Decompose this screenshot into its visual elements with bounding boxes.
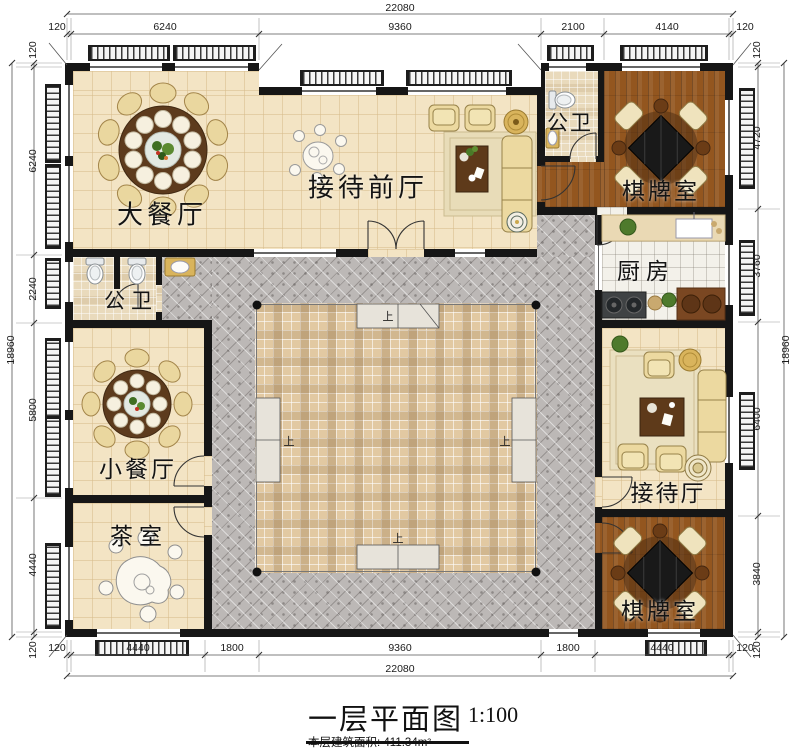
dim-bottom-total: 22080 — [385, 663, 414, 675]
floor-corridor-east — [537, 215, 595, 257]
window — [725, 397, 733, 463]
room-label-reception-hall: 接待厅 — [631, 474, 706, 508]
window — [65, 547, 73, 620]
window — [90, 63, 162, 71]
dim-right-5: 120 — [751, 641, 763, 659]
dim-bottom-1: 4440 — [126, 642, 149, 654]
window — [549, 629, 578, 637]
dim-bottom-3: 9360 — [388, 642, 411, 654]
dim-top-5: 120 — [736, 21, 754, 33]
room-label-grand-dining: 大餐厅 — [117, 195, 207, 232]
railing-icon — [45, 84, 61, 163]
railing-icon — [45, 164, 61, 249]
door-gap-main-entrance — [368, 249, 424, 257]
stair-up-label: 上 — [500, 433, 511, 449]
room-label-tea-room: 茶室 — [110, 517, 168, 551]
dim-left-0: 120 — [27, 41, 39, 59]
window — [622, 63, 700, 71]
door-gap-wc-top — [570, 156, 596, 162]
door-gap-kitchen — [597, 207, 627, 215]
railing-icon — [45, 338, 61, 419]
window — [725, 245, 733, 305]
dim-top-4: 4140 — [655, 21, 678, 33]
door-gap-tea-room — [204, 507, 212, 535]
dim-bottom-0: 120 — [48, 642, 66, 654]
plan-scale: 1:100 — [468, 702, 518, 728]
window — [65, 342, 73, 410]
dim-left-5: 120 — [27, 641, 39, 659]
dim-top-1: 6240 — [153, 21, 176, 33]
railing-icon — [620, 45, 708, 61]
railing-icon — [547, 45, 594, 61]
stair-up-label: 上 — [284, 433, 295, 449]
floor-corridor-alcove — [162, 257, 212, 320]
window — [455, 249, 485, 257]
dim-right-total: 18960 — [780, 335, 792, 364]
dim-bottom-2: 1800 — [220, 642, 243, 654]
window — [65, 85, 73, 156]
dim-right-3: 6400 — [751, 407, 763, 430]
dim-bottom-4: 1800 — [556, 642, 579, 654]
stair-up-label: 上 — [393, 530, 404, 546]
window — [595, 245, 602, 290]
room-label-chess-top: 棋牌室 — [622, 172, 700, 206]
window — [725, 100, 733, 175]
window — [65, 262, 73, 302]
dim-left-4: 4440 — [27, 553, 39, 576]
dim-left-total: 18960 — [5, 335, 17, 364]
railing-icon — [88, 45, 170, 61]
dim-top-2: 9360 — [388, 21, 411, 33]
window — [97, 629, 180, 637]
room-label-kitchen: 厨房 — [617, 252, 675, 286]
dim-top-3: 2100 — [561, 21, 584, 33]
room-label-wc-top: 公卫 — [547, 107, 593, 137]
railing-icon — [45, 258, 61, 309]
stair-up-label: 上 — [383, 308, 394, 324]
railing-icon — [739, 240, 755, 316]
dim-bottom-5: 4440 — [650, 642, 673, 654]
window — [408, 87, 506, 95]
dim-top-0: 120 — [48, 21, 66, 33]
dim-right-1: 4720 — [751, 126, 763, 149]
room-label-small-dining: 小餐厅 — [99, 450, 177, 484]
railing-icon — [173, 45, 256, 61]
dim-left-1: 6240 — [27, 149, 39, 172]
plan-area-note: 本层建筑面积: 411.34m² — [308, 734, 431, 750]
railing-icon — [739, 392, 755, 470]
room-label-front-reception: 接待前厅 — [308, 168, 428, 205]
door-gap-small-dining — [204, 456, 212, 486]
window — [549, 63, 586, 71]
floor-chess-top-entry — [545, 162, 604, 207]
dim-left-3: 5800 — [27, 398, 39, 421]
door-gap-chess-bottom — [595, 523, 602, 553]
door-gap-chess-top — [537, 166, 545, 202]
floor-plan: 大餐厅 接待前厅 公卫 棋牌室 厨房 公卫 小餐厅 茶室 接待厅 棋牌室 上 上… — [0, 0, 800, 750]
window — [302, 87, 376, 95]
window — [65, 166, 73, 242]
window — [648, 629, 700, 637]
floor-grand-dining — [73, 71, 259, 95]
door-gap-reception-hall — [595, 477, 602, 507]
dim-right-4: 3840 — [751, 562, 763, 585]
dim-top-total: 22080 — [385, 2, 414, 14]
dim-right-0: 120 — [751, 41, 763, 59]
window — [175, 63, 248, 71]
railing-icon — [406, 70, 512, 86]
dim-left-2: 2240 — [27, 277, 39, 300]
dim-right-2: 3760 — [751, 254, 763, 277]
room-label-wc-left: 公卫 — [104, 285, 158, 315]
railing-icon — [45, 416, 61, 497]
railing-icon — [300, 70, 384, 86]
railing-icon — [45, 543, 61, 629]
room-label-chess-bottom: 棋牌室 — [621, 592, 699, 626]
window — [254, 249, 336, 257]
window — [65, 420, 73, 488]
